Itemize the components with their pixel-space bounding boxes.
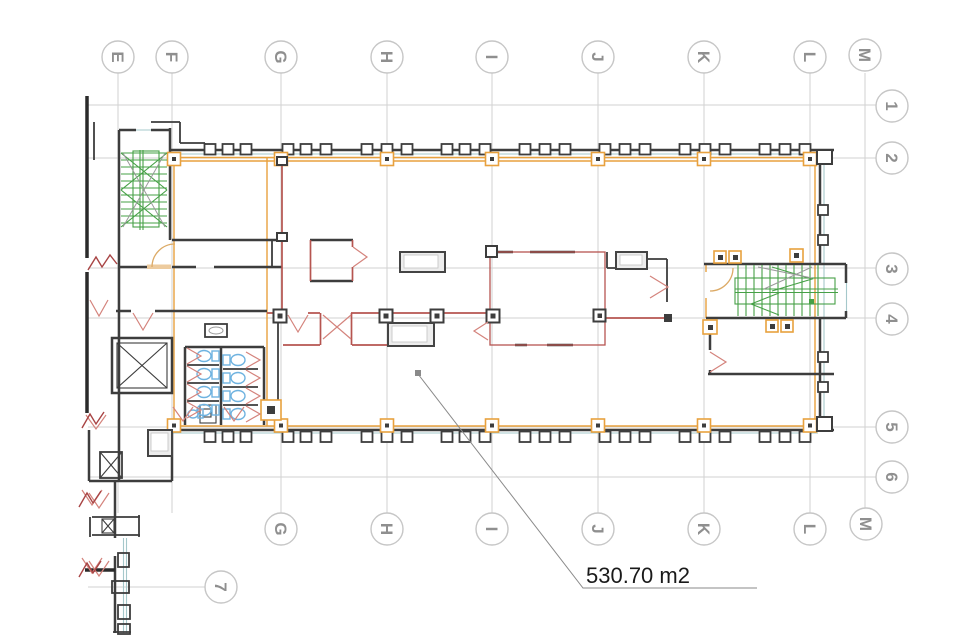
toilet-bowl — [197, 387, 211, 398]
facade-column — [800, 432, 811, 443]
facade-column — [283, 432, 294, 443]
grid-column-core — [596, 424, 600, 428]
grid-bubble-label: 3 — [882, 264, 901, 273]
grid-column-core — [808, 424, 812, 428]
door-arc — [710, 268, 733, 291]
elevator-cross — [117, 343, 167, 388]
stair-left — [121, 150, 167, 230]
floor-plan-canvas: 530.70 m2 EFGHIJKLM123456GHIJKLM7 — [0, 0, 974, 636]
duct-cross — [102, 519, 114, 533]
facade-column — [402, 432, 413, 443]
facade-column — [205, 432, 216, 443]
facade-column — [301, 144, 312, 155]
stair-rail-outline — [735, 278, 835, 304]
facade-column — [362, 432, 373, 443]
corner-block — [817, 417, 832, 431]
room1-wall-segments — [310, 240, 353, 281]
facade-column — [540, 144, 551, 155]
grid-bubble: H — [371, 513, 403, 545]
grid-bubble: M — [850, 508, 882, 540]
toilet-bowl — [197, 405, 211, 416]
wall-notch — [818, 205, 828, 215]
stair-treads — [738, 265, 818, 316]
grid-column-core — [808, 157, 812, 161]
facade-column — [241, 432, 252, 443]
room2-wall-segments — [497, 252, 575, 345]
facade-column — [382, 432, 393, 443]
toilet-bowl — [197, 351, 211, 362]
grid-bubble-label: 7 — [211, 582, 230, 591]
grid-column-core — [490, 424, 494, 428]
grid-bubble: 1 — [876, 90, 908, 122]
grid-bubble-label: K — [694, 523, 713, 536]
column-core — [708, 325, 713, 330]
floor-plan-svg: 530.70 m2 EFGHIJKLM123456GHIJKLM7 — [0, 0, 974, 636]
break-marks — [79, 255, 117, 577]
grid-bubble: 4 — [876, 303, 908, 335]
toilet-tank — [212, 387, 219, 397]
door-swings — [82, 247, 726, 576]
column-core — [435, 314, 440, 319]
column-core — [770, 324, 775, 329]
orange-wall-finish — [172, 158, 818, 430]
grid-bubble: I — [476, 41, 508, 73]
grid-column-core — [279, 424, 283, 428]
room2-outline — [490, 252, 605, 345]
grid-bubble: 6 — [876, 461, 908, 493]
grid-bubble-label: 5 — [882, 422, 901, 431]
toilet-tank — [212, 369, 219, 379]
grid-bubble: J — [582, 513, 614, 545]
grid-column-core — [385, 157, 389, 161]
corridor-walls — [116, 240, 282, 311]
table-top — [392, 326, 427, 342]
facade-column — [620, 432, 631, 443]
grid-bubble: G — [265, 513, 297, 545]
area-leader: 530.70 m2 — [415, 370, 757, 588]
grid-bubble-label: 2 — [882, 153, 901, 162]
column-core — [718, 255, 723, 260]
leader-anchor-dot — [415, 370, 421, 376]
grid-bubble: G — [265, 41, 297, 73]
column-core — [278, 314, 283, 319]
grid-bubble: 5 — [876, 411, 908, 443]
facade-column — [362, 144, 373, 155]
facade-column — [680, 144, 691, 155]
walls — [85, 96, 846, 633]
facade-column — [700, 432, 711, 443]
stair-zone-columns — [261, 249, 803, 420]
grid-bubble-label: F — [162, 52, 181, 62]
grid-bubble-label: 4 — [882, 314, 901, 324]
grid-bubble-label: E — [108, 51, 127, 62]
facade-column — [760, 144, 771, 155]
grid-bubble-label: G — [271, 50, 290, 63]
facade-column — [241, 144, 252, 155]
toilet-bowl — [231, 355, 245, 366]
facade-column — [720, 432, 731, 443]
facade-column — [520, 144, 531, 155]
door-swing-marks — [82, 247, 726, 576]
column-core — [785, 324, 790, 329]
sink — [205, 324, 227, 337]
column-core — [598, 314, 603, 319]
toilet-bowl — [197, 369, 211, 380]
grid-bubble: K — [688, 513, 720, 545]
facade-column — [560, 432, 571, 443]
facade-column — [223, 432, 234, 443]
grid-column-core — [172, 157, 176, 161]
grid-bubble: L — [794, 513, 826, 545]
toilet-tank — [223, 373, 230, 383]
facade-column — [460, 144, 471, 155]
partition-end — [277, 233, 287, 241]
facade-column — [620, 144, 631, 155]
facade-column — [640, 432, 651, 443]
grid-bubble: E — [102, 41, 134, 73]
grid-column-core — [596, 157, 600, 161]
facade-column — [560, 144, 571, 155]
partition-end — [277, 157, 287, 165]
stair-landing-dot — [809, 299, 814, 304]
column-core — [384, 314, 389, 319]
orange-finish-lines — [172, 158, 818, 430]
toilet-tank — [212, 351, 219, 361]
grid-column-core — [172, 424, 176, 428]
toilet-bowl — [231, 373, 245, 384]
grid-bubble: H — [371, 41, 403, 73]
toilet-bowl — [231, 409, 245, 420]
facade-column — [640, 144, 651, 155]
stair-divider — [140, 150, 143, 230]
facade-column — [780, 432, 791, 443]
grid-bubble: 3 — [876, 253, 908, 285]
grid-bubble: K — [688, 41, 720, 73]
toilet-bowl — [231, 391, 245, 402]
facade-column — [760, 432, 771, 443]
wall-notch — [818, 352, 828, 362]
column-core — [491, 314, 496, 319]
facade-column — [780, 144, 791, 155]
grid-bubble-label: L — [800, 524, 819, 534]
grid-bubble-label: 1 — [882, 101, 901, 110]
grid-column-core — [702, 424, 706, 428]
facade-column — [520, 432, 531, 443]
facade-column — [680, 432, 691, 443]
grid-bubble: 7 — [205, 571, 237, 603]
grid-bubble: I — [476, 513, 508, 545]
grid-bubble-label: J — [588, 52, 607, 61]
grid-column-core — [385, 424, 389, 428]
grid-bubble-label: I — [482, 55, 501, 60]
grid-bubble-label: J — [588, 524, 607, 533]
stair-bumpout-walls — [704, 264, 846, 318]
sink-basin — [209, 327, 223, 334]
facade-column — [402, 144, 413, 155]
grid-column-core — [490, 157, 494, 161]
grid-bubble: F — [156, 41, 188, 73]
table-top — [404, 255, 438, 268]
column — [486, 246, 497, 257]
grid-bubble-label: H — [377, 523, 396, 535]
facade-column — [321, 144, 332, 155]
wall-break-zigzag — [79, 255, 117, 577]
stair-right — [735, 265, 838, 316]
stair-treads — [121, 153, 167, 223]
grid-bubble-label: K — [694, 51, 713, 64]
equipment-top — [620, 255, 642, 265]
grid-bubble: M — [849, 39, 881, 71]
door-threshold — [147, 265, 171, 270]
grid-bubble-label: 6 — [882, 472, 901, 481]
area-label: 530.70 m2 — [586, 563, 690, 588]
toilet-tank — [223, 391, 230, 401]
facade-column — [205, 144, 216, 155]
partition-columns — [274, 246, 673, 323]
facade-column — [480, 432, 491, 443]
facade-column — [442, 144, 453, 155]
table-top — [151, 433, 168, 451]
facade-column — [321, 432, 332, 443]
grid-bubble: 2 — [876, 142, 908, 174]
wall-notch — [818, 235, 828, 245]
stair-direction-arrows — [751, 267, 812, 315]
grid-bubble-label: L — [800, 52, 819, 62]
toilet-tank — [223, 355, 230, 365]
grid-bubble-label: M — [855, 48, 874, 62]
column-core — [733, 255, 738, 260]
facade-column — [540, 432, 551, 443]
facade-column — [223, 144, 234, 155]
facade-columns — [205, 144, 811, 442]
facade-column — [720, 144, 731, 155]
facade-column — [301, 432, 312, 443]
red-partitions — [267, 157, 672, 345]
grid-bubble-label: M — [856, 517, 875, 531]
column-core — [794, 253, 799, 258]
leader-line — [418, 374, 757, 588]
wall-notch — [818, 382, 828, 392]
grid-bubble: L — [794, 41, 826, 73]
column-core — [267, 406, 275, 414]
grid-bubble-label: G — [271, 522, 290, 535]
corner-block — [817, 150, 832, 164]
grid-column-core — [702, 157, 706, 161]
grid-bubble-label: H — [377, 51, 396, 63]
grid-bubble-label: I — [482, 527, 501, 532]
facade-column — [600, 432, 611, 443]
facade-column — [442, 432, 453, 443]
column-core — [664, 314, 672, 322]
grid-bubble: J — [582, 41, 614, 73]
